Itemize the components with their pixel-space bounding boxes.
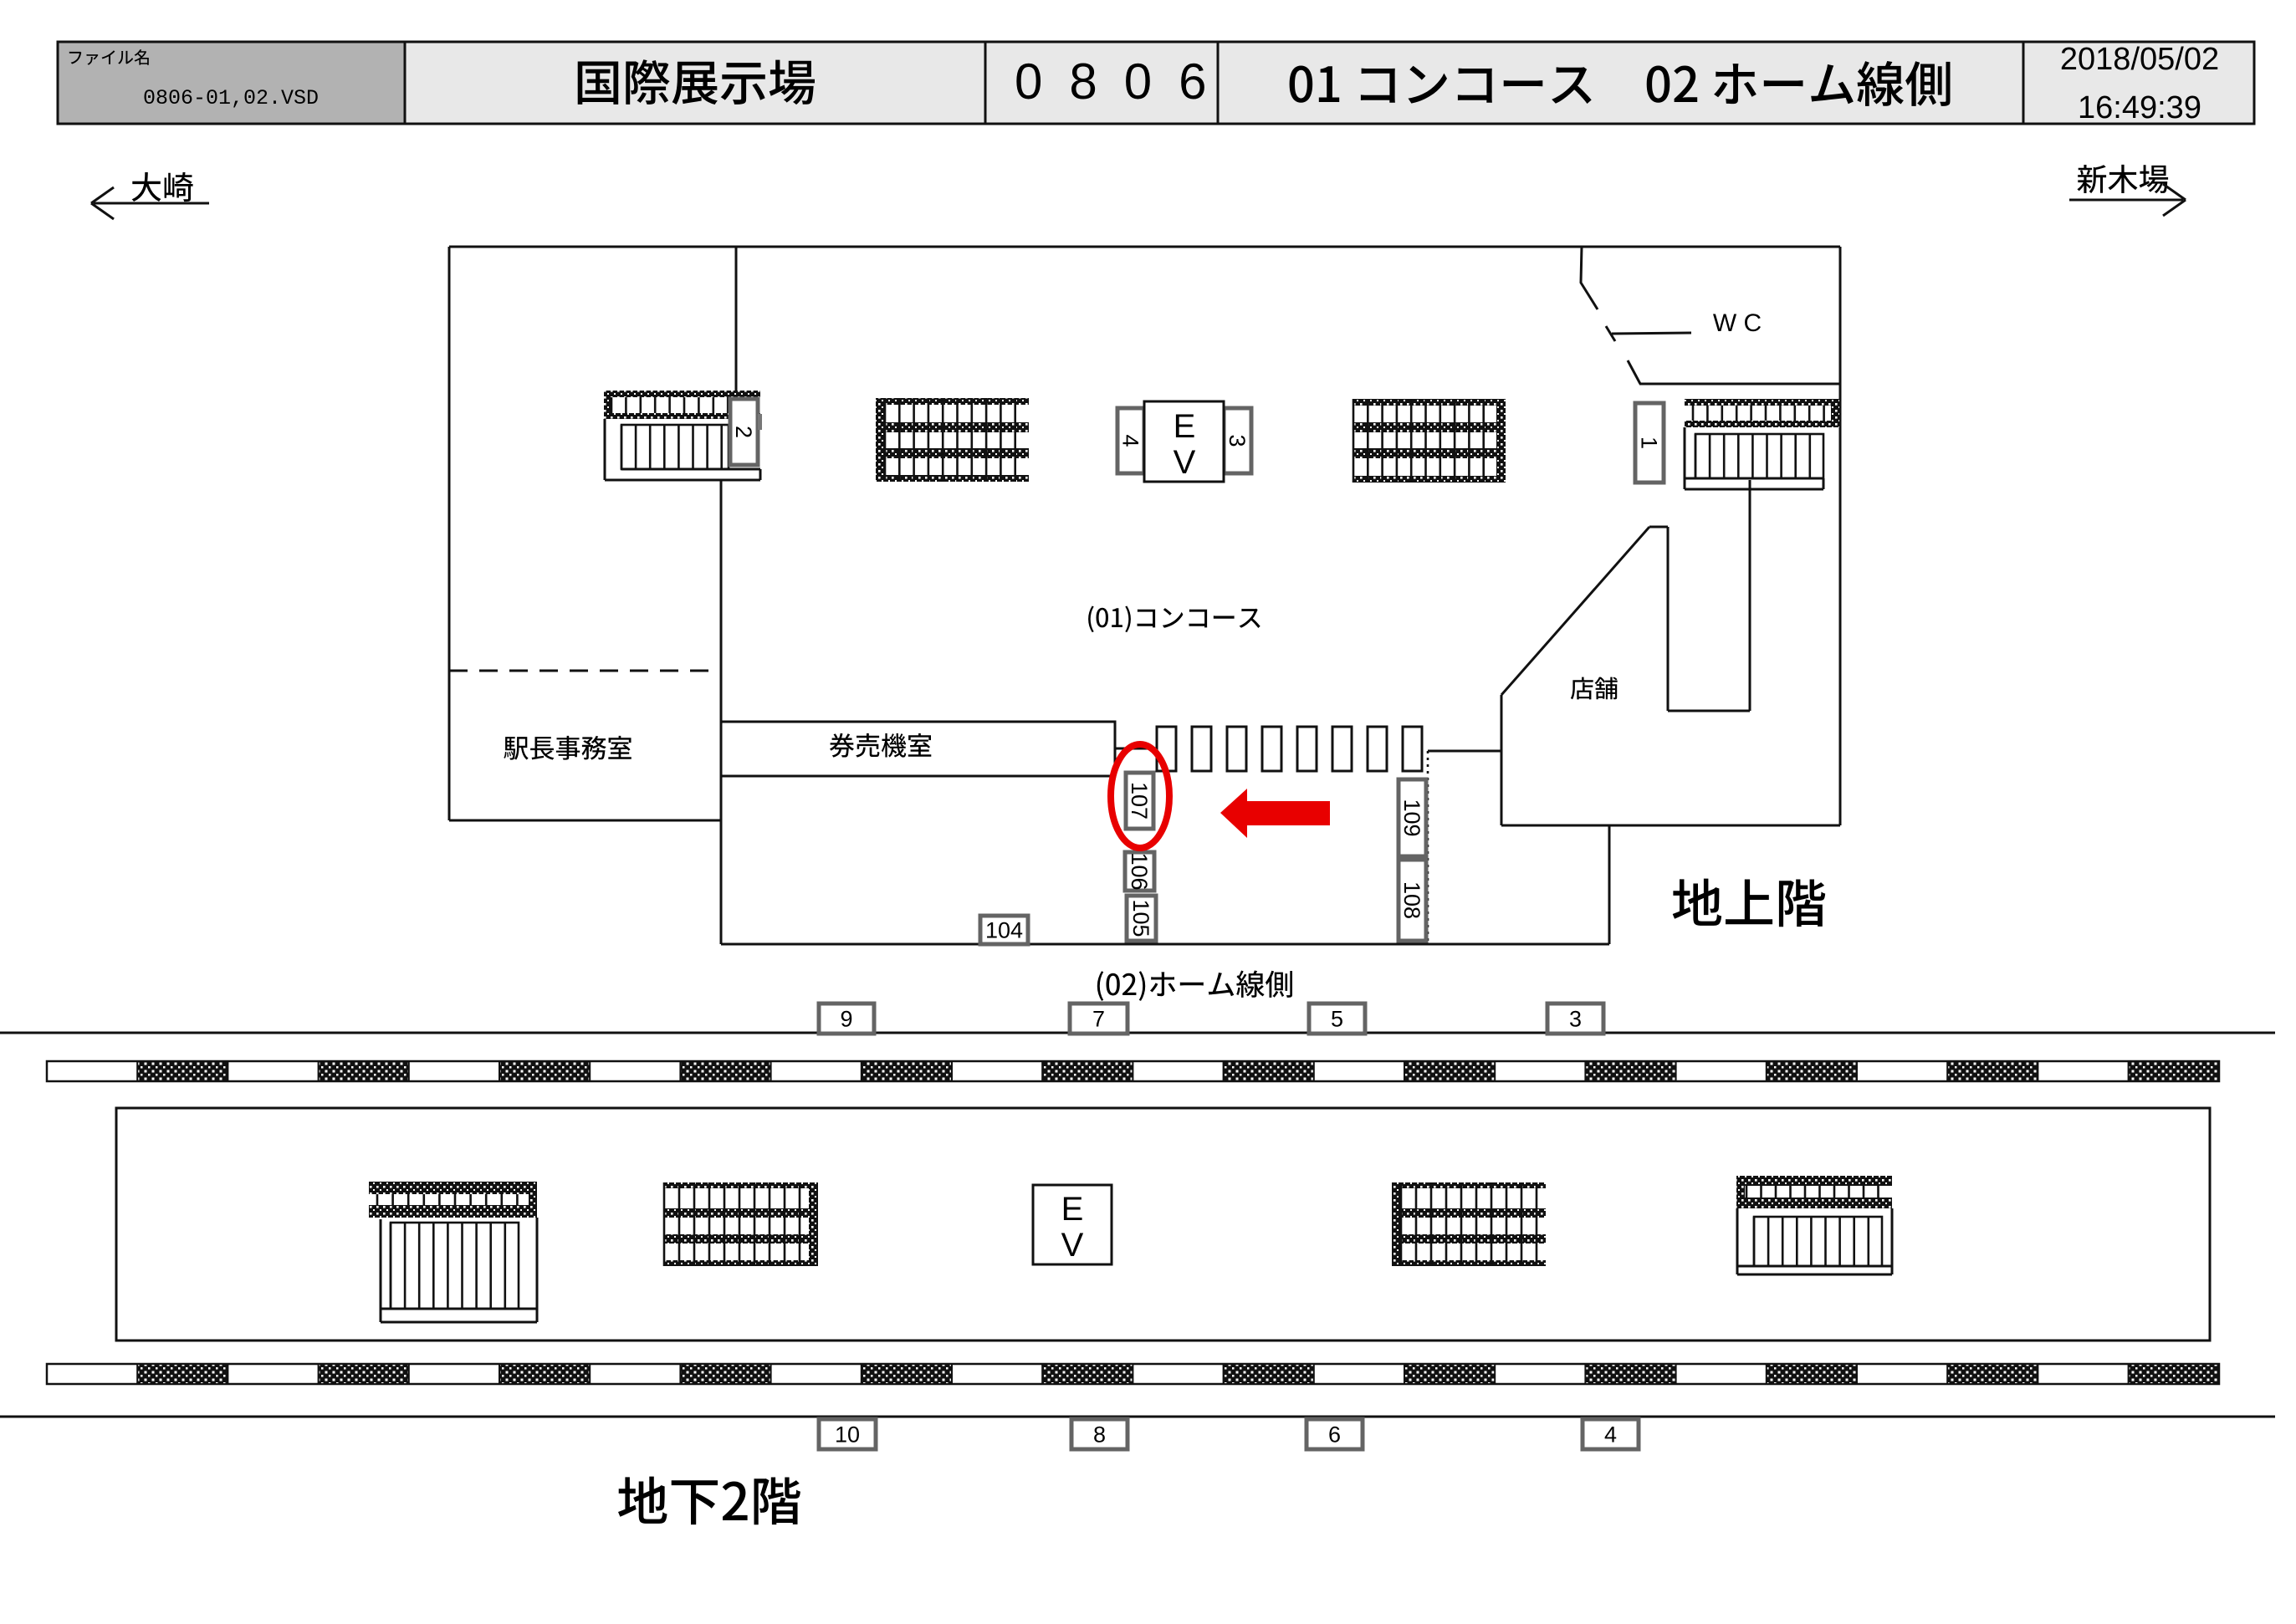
svg-text:107: 107 [1127,782,1152,820]
svg-text:0806: 0806 [1015,54,1233,110]
svg-text:E: E [1174,408,1196,445]
svg-text:0806-01,02.VSD: 0806-01,02.VSD [143,86,319,110]
svg-text:4: 4 [1118,434,1143,447]
svg-text:3: 3 [1225,434,1250,447]
svg-text:1: 1 [1637,437,1662,449]
svg-text:3: 3 [1569,1006,1582,1031]
svg-text:V: V [1061,1227,1084,1264]
svg-text:10: 10 [835,1422,860,1447]
svg-text:108: 108 [1399,881,1424,919]
svg-text:8: 8 [1093,1422,1106,1447]
svg-text:9: 9 [840,1006,852,1031]
svg-text:4: 4 [1604,1422,1617,1447]
svg-text:V: V [1174,444,1196,481]
svg-text:105: 105 [1128,899,1153,937]
svg-text:106: 106 [1127,852,1152,890]
svg-text:E: E [1061,1191,1084,1228]
svg-text:5: 5 [1331,1006,1343,1031]
svg-text:2018/05/02: 2018/05/02 [2060,42,2219,77]
svg-text:W C: W C [1713,309,1762,337]
svg-text:7: 7 [1092,1006,1105,1031]
svg-text:6: 6 [1328,1422,1341,1447]
svg-text:2: 2 [731,426,756,438]
svg-text:104: 104 [985,917,1023,942]
svg-text:16:49:39: 16:49:39 [2078,90,2201,125]
svg-text:109: 109 [1399,799,1424,836]
